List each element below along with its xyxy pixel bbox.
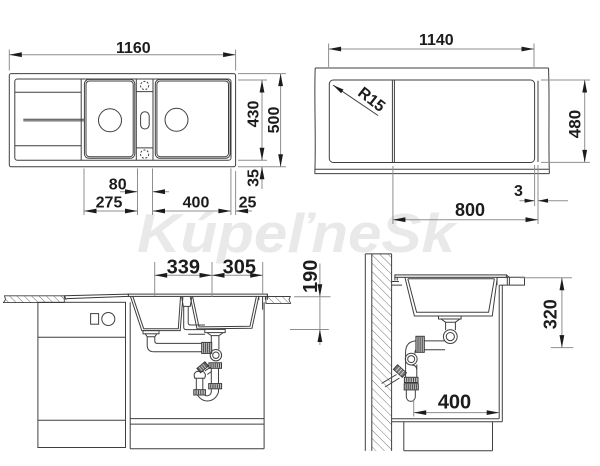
- svg-text:800: 800: [455, 200, 485, 220]
- svg-text:339: 339: [167, 257, 200, 279]
- svg-text:80: 80: [109, 176, 127, 193]
- svg-text:430: 430: [246, 101, 263, 128]
- svg-text:1160: 1160: [116, 40, 151, 57]
- svg-text:400: 400: [438, 392, 471, 414]
- svg-text:480: 480: [565, 110, 584, 138]
- svg-text:320: 320: [540, 299, 560, 329]
- svg-text:500: 500: [266, 107, 283, 134]
- svg-text:190: 190: [300, 260, 322, 293]
- svg-text:400: 400: [183, 195, 210, 212]
- svg-text:1140: 1140: [419, 32, 454, 49]
- svg-text:25: 25: [239, 195, 257, 212]
- svg-text:3: 3: [514, 183, 523, 200]
- svg-text:305: 305: [223, 257, 256, 279]
- svg-text:275: 275: [96, 195, 123, 212]
- svg-text:35: 35: [246, 169, 263, 187]
